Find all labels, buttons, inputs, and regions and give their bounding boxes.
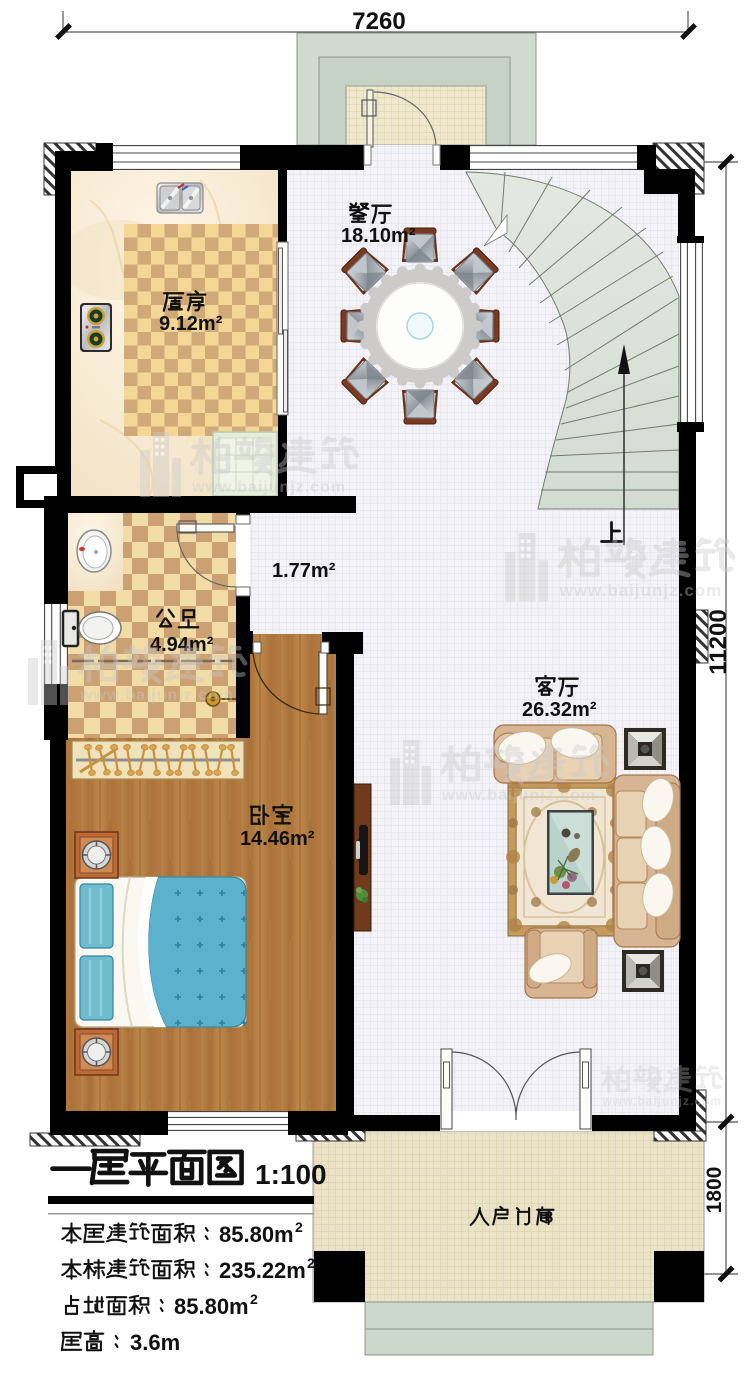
svg-text:3.6m: 3.6m	[130, 1330, 180, 1355]
svg-text:www.baijunjz.com: www.baijunjz.com	[559, 581, 723, 600]
svg-text:26.32m²: 26.32m²	[522, 699, 597, 721]
svg-text:www.baijunjz.com: www.baijunjz.com	[79, 687, 234, 704]
svg-text:18.10m²: 18.10m²	[341, 225, 416, 247]
svg-text:14.46m²: 14.46m²	[240, 828, 315, 850]
svg-text:1800: 1800	[703, 1167, 726, 1214]
svg-text:7260: 7260	[352, 8, 405, 35]
svg-text:2: 2	[295, 1219, 303, 1235]
svg-text:1.77m²: 1.77m²	[272, 560, 336, 582]
svg-text:www.baijunjz.com: www.baijunjz.com	[441, 787, 596, 804]
svg-text:2: 2	[307, 1255, 315, 1271]
svg-text:11200: 11200	[705, 609, 732, 674]
svg-text:85.80m: 85.80m	[174, 1294, 249, 1319]
svg-text:1:100: 1:100	[255, 1159, 327, 1190]
svg-text:235.22m: 235.22m	[219, 1258, 306, 1283]
svg-text:www.baijunjz.com: www.baijunjz.com	[191, 479, 346, 496]
svg-text:9.12m²: 9.12m²	[159, 313, 223, 335]
svg-text:www.baijunjz.com: www.baijunjz.com	[601, 1094, 722, 1108]
svg-text:2: 2	[250, 1291, 258, 1307]
svg-text:85.80m: 85.80m	[219, 1222, 294, 1247]
